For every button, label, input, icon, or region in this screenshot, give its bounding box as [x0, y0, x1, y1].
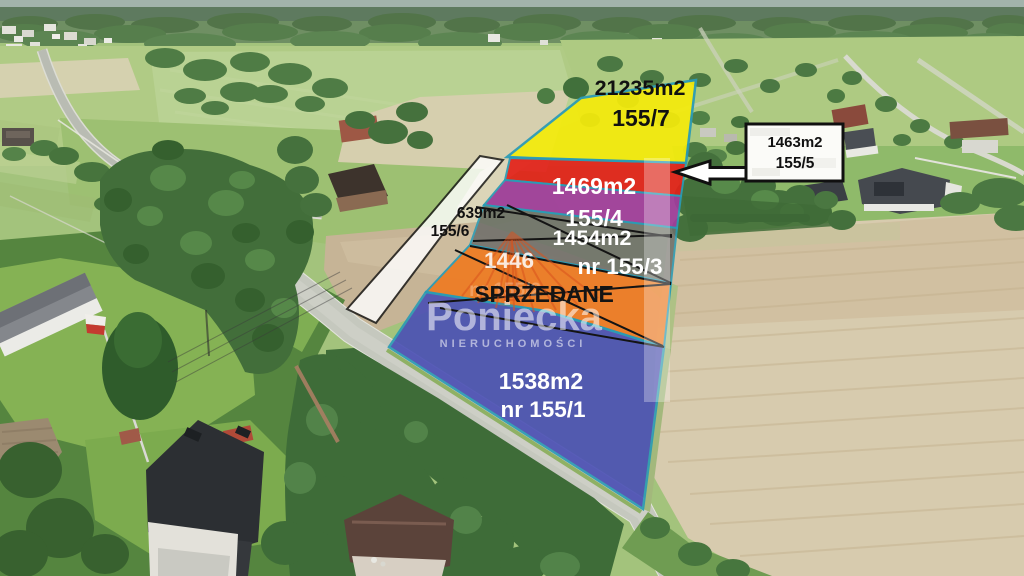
svg-text:1538m2: 1538m2	[499, 368, 583, 394]
svg-text:1469m2: 1469m2	[552, 173, 636, 199]
svg-text:nr 155/3: nr 155/3	[577, 254, 662, 279]
svg-text:1463m2: 1463m2	[767, 134, 822, 151]
svg-text:1446: 1446	[484, 248, 534, 273]
svg-text:NIERUCHOMOŚCI: NIERUCHOMOŚCI	[440, 337, 587, 350]
svg-text:155/7: 155/7	[612, 105, 670, 131]
svg-text:1454m2: 1454m2	[553, 226, 632, 250]
svg-text:nr 155/1: nr 155/1	[500, 397, 585, 422]
svg-text:639m2: 639m2	[457, 205, 505, 222]
svg-text:155/6: 155/6	[431, 223, 470, 240]
svg-text:SPRZEDANE: SPRZEDANE	[474, 281, 613, 307]
svg-text:155/5: 155/5	[776, 155, 815, 172]
svg-text:21235m2: 21235m2	[595, 76, 686, 100]
